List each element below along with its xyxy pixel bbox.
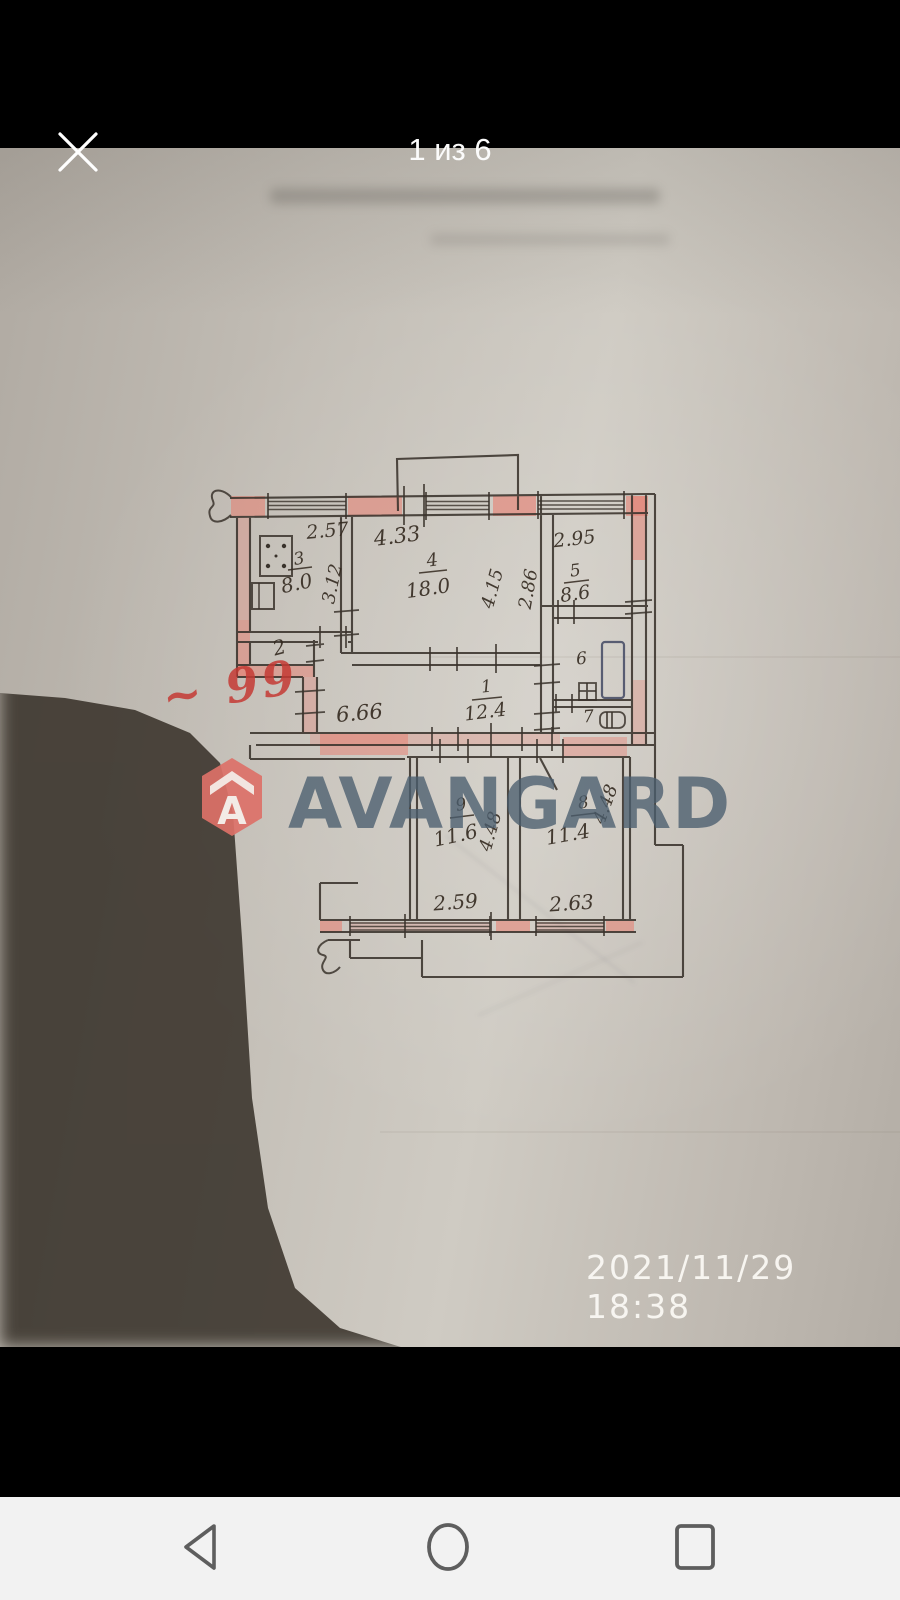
avangard-watermark-text: AVANGARD — [288, 768, 731, 840]
recents-square-icon — [672, 1521, 718, 1573]
room4-area: 18.0 — [404, 573, 452, 603]
floor-plan-drawing: 2.57 4.33 2.95 3 8.0 3.12 4 18.0 4.15 2.… — [200, 440, 690, 1000]
back-triangle-icon — [178, 1521, 222, 1573]
paper-crease — [380, 1131, 900, 1133]
home-circle-icon — [424, 1521, 472, 1573]
washbasin-icon — [579, 683, 596, 700]
room-label-hall: 1 12.4 — [463, 677, 508, 726]
wc-number: 7 — [582, 707, 595, 728]
room4-number: 4 — [424, 549, 439, 572]
room-label-kitchen: 3 8.0 — [278, 548, 314, 598]
hall-number: 1 — [480, 677, 493, 698]
dim-top-mid: 4.33 — [371, 521, 421, 551]
hall-area: 12.4 — [463, 699, 508, 726]
dim-room3-depth: 3.12 — [318, 562, 347, 606]
plan-door-ticks — [268, 484, 652, 940]
svg-text:A: A — [217, 789, 247, 833]
dim-bottom-left: 2.59 — [431, 888, 478, 915]
dim-bottom-right: 2.63 — [547, 889, 594, 916]
photo-timestamp: 2021/11/29 18:38 — [586, 1248, 900, 1326]
bathtub-icon — [602, 642, 624, 698]
plan-labels: 2.57 4.33 2.95 3 8.0 3.12 4 18.0 4.15 2.… — [269, 518, 623, 916]
nav-recents-button[interactable] — [665, 1515, 725, 1579]
paper-smudge — [270, 188, 660, 204]
room3-area: 8.0 — [278, 568, 314, 598]
android-nav-bar — [0, 1497, 900, 1600]
dim-top-right: 2.95 — [551, 526, 596, 552]
room-label-bedroom5: 5 8.6 — [559, 560, 592, 607]
stove-icon — [260, 536, 292, 576]
dim-hall-length: 6.66 — [335, 699, 384, 727]
dim-room5-depth: 2.86 — [515, 567, 543, 611]
nav-back-button[interactable] — [170, 1515, 230, 1579]
paper-smudge — [430, 234, 670, 245]
dim-top-left: 2.57 — [304, 518, 350, 544]
top-black-bar — [0, 0, 900, 148]
dim-room4-depth: 4.15 — [477, 567, 508, 612]
nav-home-button[interactable] — [418, 1515, 478, 1579]
phone-screen: { "header": { "title": "1 из 6" }, "icon… — [0, 0, 900, 1600]
close-icon[interactable] — [48, 122, 108, 182]
bathroom-number: 6 — [575, 649, 588, 670]
room3-number: 3 — [292, 548, 306, 570]
room-label-living: 4 18.0 — [404, 549, 452, 603]
photo-viewer-image[interactable]: 2.57 4.33 2.95 3 8.0 3.12 4 18.0 4.15 2.… — [0, 148, 900, 1347]
room5-area: 8.6 — [559, 581, 592, 607]
sink-icon — [252, 583, 274, 609]
avangard-logo-icon: A — [198, 756, 266, 842]
bottom-black-bar — [0, 1347, 900, 1497]
toilet-icon — [600, 712, 625, 728]
room5-number: 5 — [569, 560, 583, 581]
